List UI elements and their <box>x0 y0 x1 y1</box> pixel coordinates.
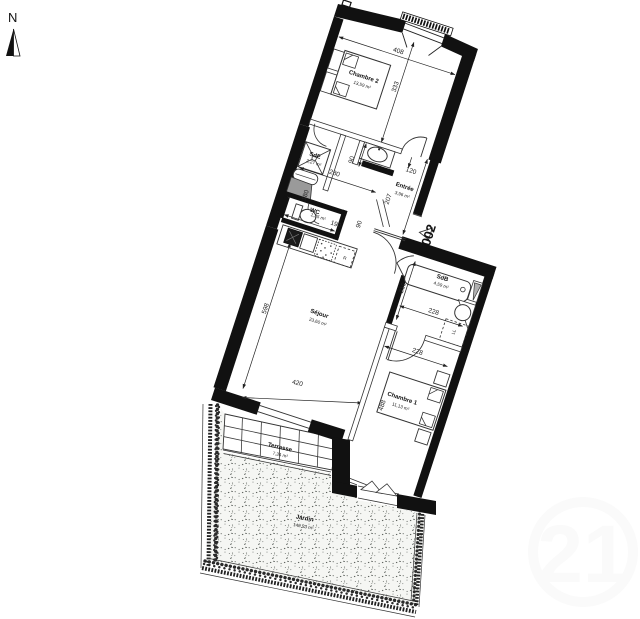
svg-text:N: N <box>8 10 17 25</box>
svg-text:21: 21 <box>537 509 628 600</box>
